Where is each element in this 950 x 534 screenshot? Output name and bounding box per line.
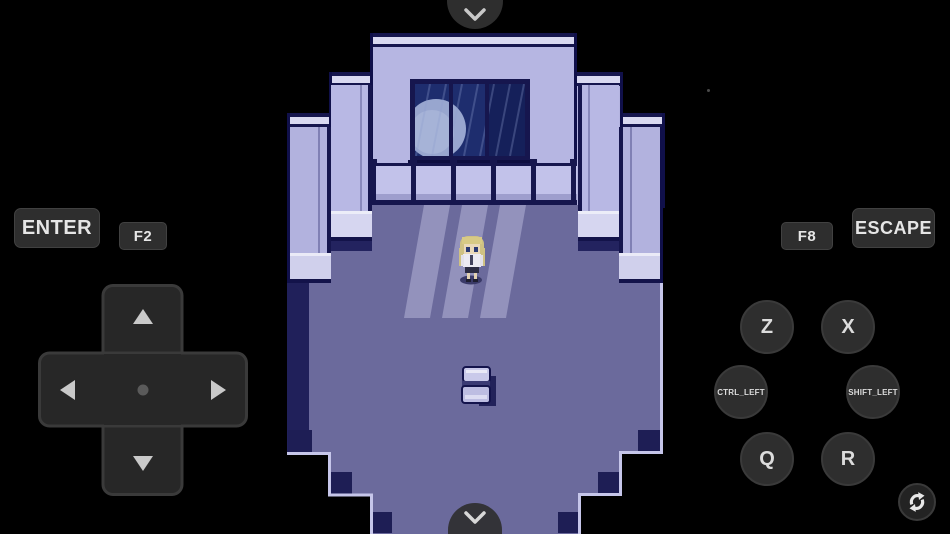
screen-artifact-dot [707, 89, 710, 92]
dpad-center-dot [138, 385, 149, 396]
dpad[interactable] [38, 284, 248, 496]
column-left-outer [287, 127, 331, 283]
chevron-down-icon [458, 510, 492, 528]
enter-key-button[interactable]: ENTER [14, 208, 100, 248]
f2-key-button[interactable]: F2 [119, 222, 167, 250]
x-action-button[interactable]: X [821, 300, 875, 354]
f8-key-button[interactable]: F8 [781, 222, 833, 250]
q-action-button[interactable]: Q [740, 432, 794, 486]
emulator-root: { "app": { "name": "rpg-touch-emulator",… [0, 0, 950, 534]
ctrl-left-action-button[interactable]: CTRL_LEFT [714, 365, 768, 419]
column-right-outer [619, 127, 663, 283]
chair [462, 367, 496, 406]
column-left-inner [331, 85, 372, 251]
shift-left-action-button[interactable]: SHIFT_LEFT [846, 365, 900, 419]
r-action-button[interactable]: R [821, 432, 875, 486]
escape-key-button[interactable]: ESCAPE [852, 208, 935, 248]
wainscot-railing [370, 159, 577, 205]
chevron-down-icon [458, 6, 492, 24]
z-action-button[interactable]: Z [740, 300, 794, 354]
rotate-screen-button[interactable] [898, 483, 936, 521]
column-right-inner [578, 85, 619, 251]
bedroom-window [406, 79, 532, 163]
rotate-screen-icon [902, 487, 932, 517]
